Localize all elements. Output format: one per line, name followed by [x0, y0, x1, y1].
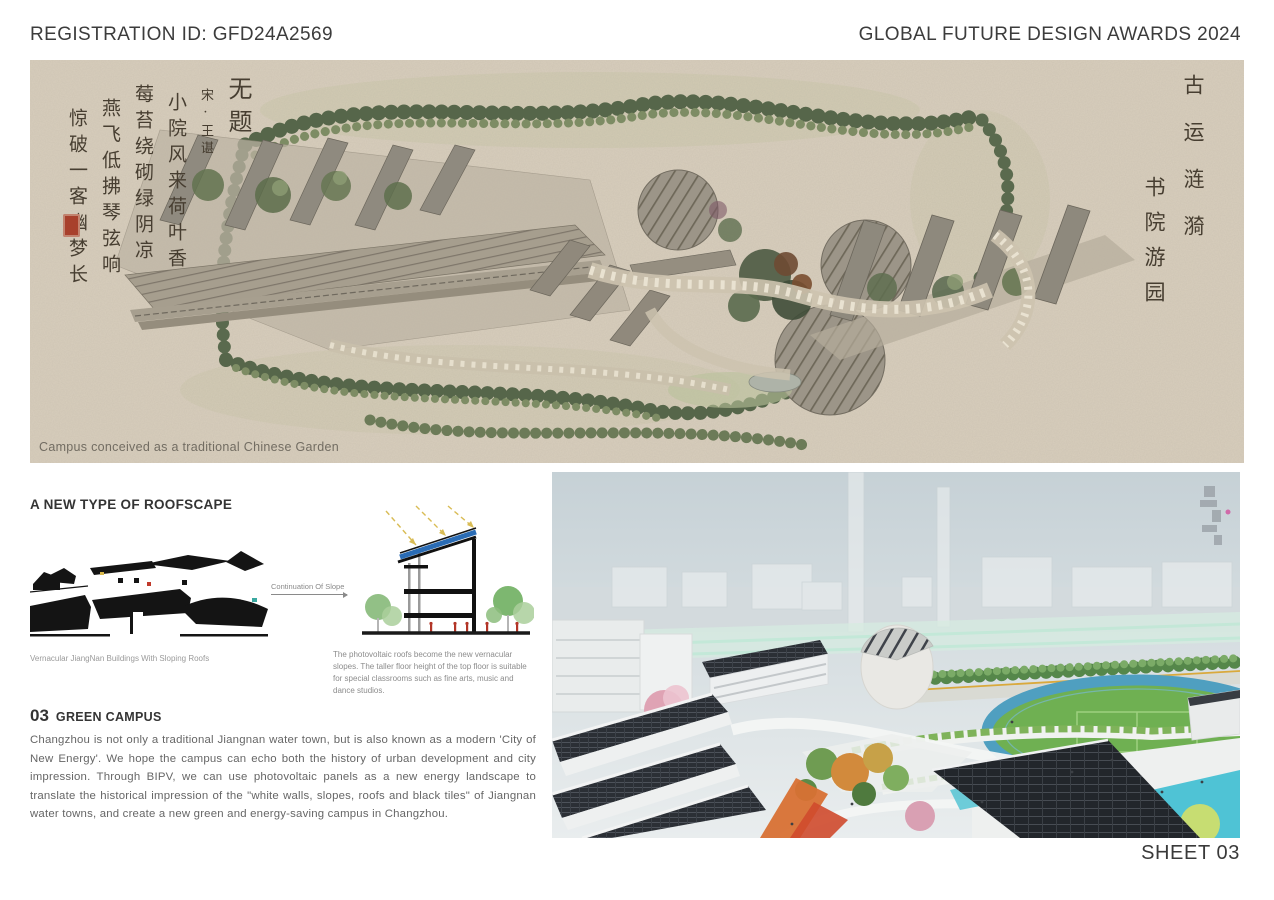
poem-author: 宋·王谌 — [196, 76, 215, 336]
continuation-arrow: Continuation Of Slope — [271, 582, 351, 595]
poem-line: 惊破一客幽梦长 — [64, 76, 91, 336]
poem-line: 燕飞低拂琴弦响 — [97, 76, 124, 336]
calligraphy-right: 古运涟漪 书院游园 — [1130, 74, 1217, 414]
masterplan-caption: Campus conceived as a traditional Chines… — [39, 440, 339, 454]
campus-render-illustration — [552, 472, 1240, 838]
roofscape-heading: A NEW TYPE OF ROOFSCAPE — [30, 497, 232, 512]
poem-title: 无题 — [221, 76, 256, 336]
award-title: GLOBAL FUTURE DESIGN AWARDS 2024 — [859, 24, 1241, 46]
section-title: GREEN CAMPUS — [56, 710, 162, 724]
pv-roof-section-diagram — [358, 505, 534, 647]
arrow-icon — [271, 594, 347, 595]
calligraphy-left: 无题 宋·王谌 小院风来荷叶香 莓苔绕砌绿阴凉 燕飞低拂琴弦响 惊破一客幽梦长 — [58, 76, 262, 336]
section-number: 03 — [30, 706, 49, 725]
registration-id: REGISTRATION ID: GFD24A2569 — [30, 24, 333, 46]
green-campus-heading: 03GREEN CAMPUS — [30, 706, 162, 726]
motto-line: 书院游园 — [1139, 74, 1169, 414]
poem-line: 小院风来荷叶香 — [163, 76, 190, 336]
section-caption: The photovoltaic roofs become the new ve… — [333, 649, 535, 697]
vernacular-roof-sketch — [30, 528, 268, 646]
motto-line: 古运涟漪 — [1178, 74, 1208, 414]
presentation-sheet: REGISTRATION ID: GFD24A2569 GLOBAL FUTUR… — [0, 0, 1274, 900]
campus-render — [552, 472, 1240, 838]
seal-stamp-icon — [63, 214, 80, 237]
arrow-label: Continuation Of Slope — [271, 582, 351, 591]
poem-line: 莓苔绕砌绿阴凉 — [130, 76, 157, 336]
sketch-caption: Vernacular JiangNan Buildings With Slopi… — [30, 653, 290, 665]
masterplan-painting: 无题 宋·王谌 小院风来荷叶香 莓苔绕砌绿阴凉 燕飞低拂琴弦响 惊破一客幽梦长 … — [30, 60, 1244, 463]
sheet-number: SHEET 03 — [1141, 842, 1240, 865]
green-campus-body: Changzhou is not only a traditional Jian… — [30, 731, 536, 824]
